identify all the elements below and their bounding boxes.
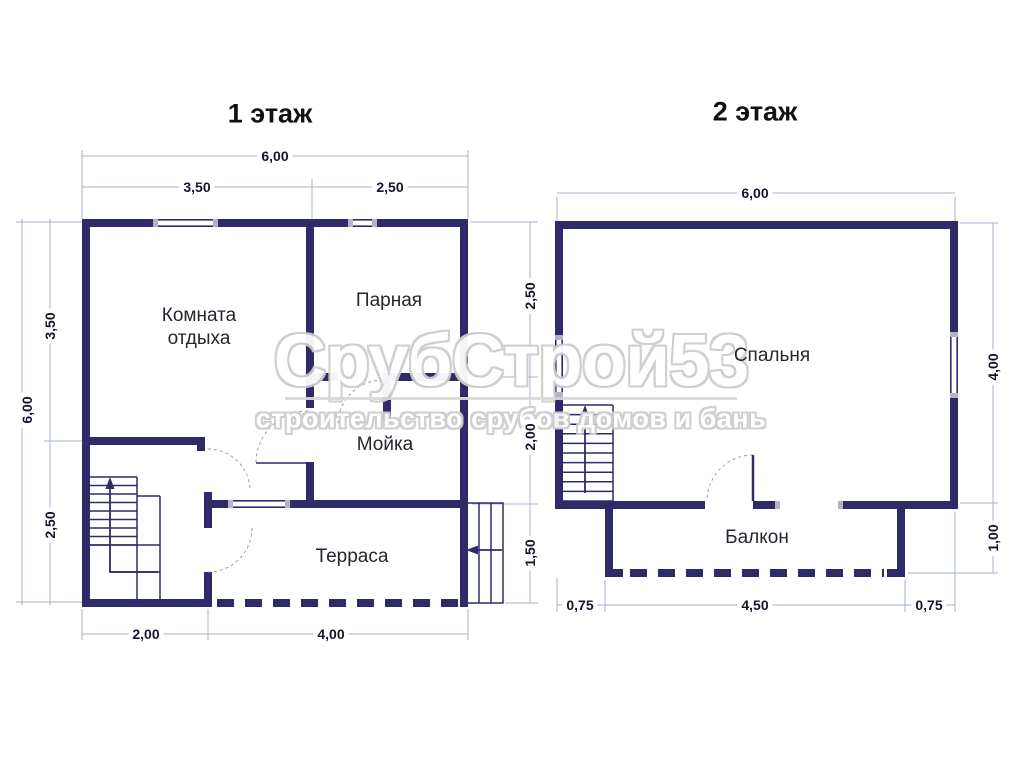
- floor1-stairs-up-arrow: [106, 477, 159, 572]
- dim-f1-top-left: 3,50: [179, 179, 214, 195]
- dim-f1-bottom-left: 2,00: [128, 626, 163, 642]
- dim-f1-top-total: 6,00: [257, 148, 292, 164]
- room-label-bedroom: Спальня: [734, 345, 810, 367]
- room-label-rest-line2: отдыха: [168, 328, 231, 350]
- floorplan-drawing: [0, 0, 1024, 768]
- dim-f1-top-right: 2,50: [372, 179, 407, 195]
- floor2-stairs-up-arrow: [581, 405, 590, 493]
- dim-f1-right-upper: 2,50: [522, 278, 538, 313]
- dim-f2-bottom-right: 0,75: [911, 597, 946, 613]
- dim-f2-right-upper: 4,00: [985, 349, 1001, 384]
- window: [158, 221, 213, 226]
- dim-f1-right-middle: 2,00: [522, 419, 538, 454]
- dim-f2-bottom-left: 0,75: [562, 597, 597, 613]
- window: [233, 502, 285, 507]
- dim-f2-top-total: 6,00: [737, 185, 772, 201]
- dim-f1-left-lower: 2,50: [42, 507, 58, 542]
- dim-f2-right-lower: 1,00: [985, 520, 1001, 555]
- floor2-walls: [555, 221, 958, 577]
- balcony-door-arc: [707, 455, 753, 501]
- entrance-arrow: [466, 546, 502, 555]
- floor2-title: 2 этаж: [713, 97, 797, 128]
- room-label-rest-line1: Комната: [162, 305, 236, 327]
- floor1-staircase: [90, 477, 160, 599]
- window: [557, 340, 562, 392]
- window: [952, 337, 957, 393]
- floor1-walls: [82, 219, 468, 607]
- dim-f1-bottom-right: 4,00: [313, 626, 348, 642]
- room-label-steam: Парная: [356, 290, 422, 312]
- floorplan-canvas: 1 этаж 2 этаж Комната отдыха Парная Мойк…: [0, 0, 1024, 768]
- dim-f1-left-total: 6,00: [19, 392, 35, 427]
- window: [353, 221, 372, 226]
- dim-f2-bottom-center: 4,50: [737, 597, 772, 613]
- room-label-wash: Мойка: [357, 434, 414, 456]
- floor1-title: 1 этаж: [228, 99, 312, 130]
- window: [780, 503, 838, 508]
- floor1-windows: [153, 219, 377, 508]
- dim-f1-right-lower: 1,50: [522, 535, 538, 570]
- floor1-door-arcs: [208, 380, 383, 572]
- entrance-steps: [467, 503, 503, 603]
- room-label-balcony: Балкон: [725, 527, 789, 549]
- room-label-terrace: Терраса: [316, 546, 389, 568]
- floor2-staircase: [563, 405, 613, 501]
- dim-f1-left-upper: 3,50: [42, 308, 58, 343]
